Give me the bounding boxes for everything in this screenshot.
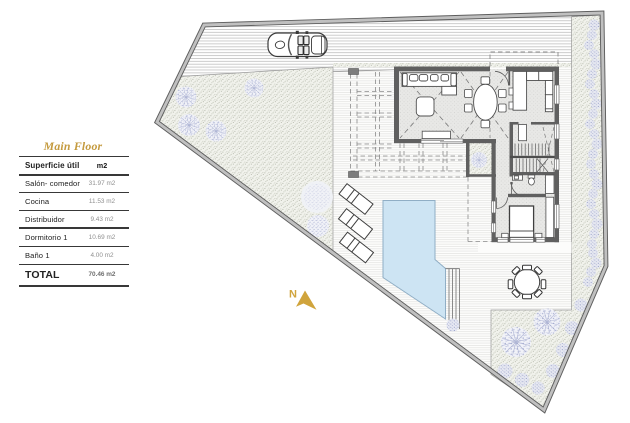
svg-text:N: N bbox=[289, 289, 297, 301]
